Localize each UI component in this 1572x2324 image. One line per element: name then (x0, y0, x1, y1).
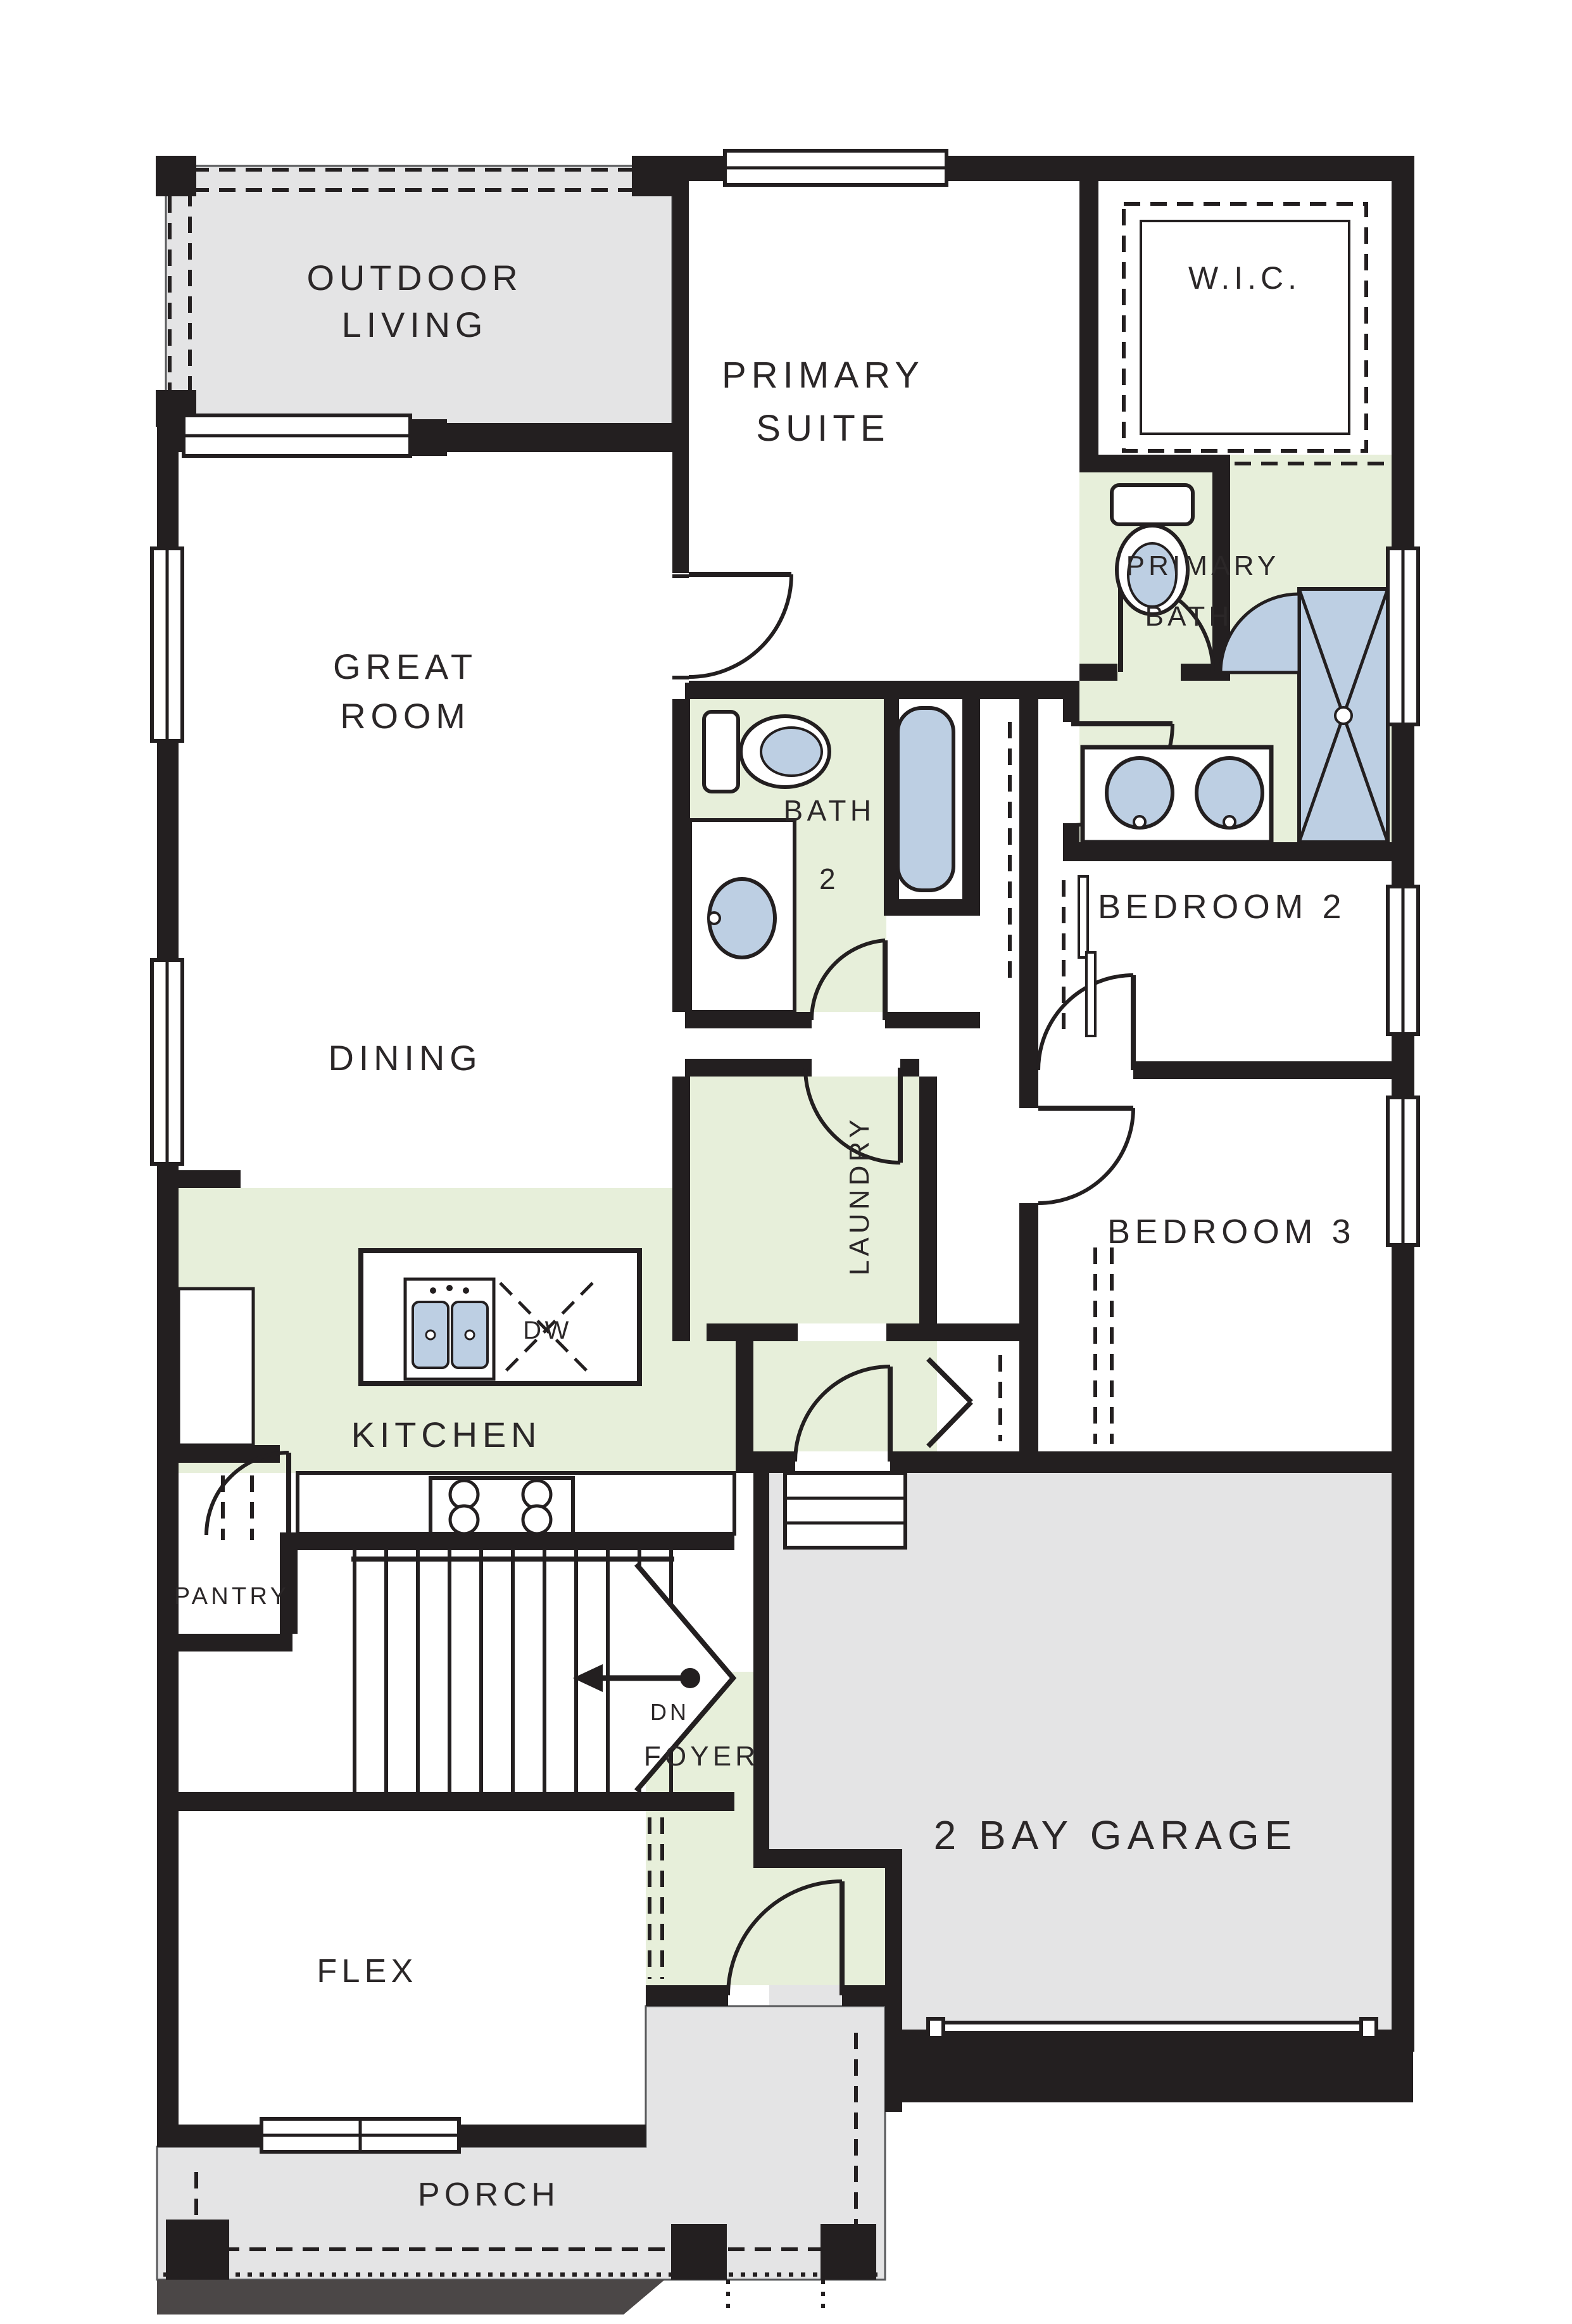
garage-steps (785, 1473, 905, 1548)
label-bedroom2: BEDROOM 2 (1098, 888, 1346, 926)
window (261, 2119, 459, 2152)
porch-pillar (821, 2224, 876, 2280)
label-dishwasher: DW (523, 1317, 572, 1344)
label-porch: PORCH (418, 2176, 560, 2213)
floorplan-svg: OUTDOOR LIVING PRIMARY SUITE W.I.C. PRIM… (0, 0, 1572, 2324)
porch-pillar (671, 2224, 727, 2280)
label-outdoor-living-2: LIVING (342, 305, 488, 344)
door-bedroom2-closet-bypass (1079, 876, 1095, 1036)
window (725, 151, 946, 185)
label-foyer: FOYER (644, 1741, 759, 1772)
double-vanity-icon (1083, 747, 1271, 842)
label-primary-suite-2: SUITE (756, 408, 890, 449)
label-bedroom3: BEDROOM 3 (1107, 1213, 1355, 1251)
label-pantry: PANTRY (174, 1583, 290, 1610)
bathtub-icon (898, 708, 953, 890)
label-bath2-2: 2 (819, 862, 839, 895)
label-dining: DINING (328, 1038, 482, 1078)
window (1388, 1097, 1418, 1245)
toilet-icon (704, 712, 829, 792)
wic-shelf-rod (1141, 221, 1349, 434)
window (184, 415, 410, 456)
label-outdoor-living-1: OUTDOOR (306, 258, 522, 298)
wic-shelf-dashed (1124, 204, 1366, 451)
label-primary-bath-2: BATH (1145, 601, 1233, 632)
label-laundry: LAUNDRY (844, 1116, 875, 1276)
label-great-room-2: ROOM (340, 696, 470, 736)
floorplan-sheet: OUTDOOR LIVING PRIMARY SUITE W.I.C. PRIM… (0, 0, 1572, 2324)
door-primary-suite (689, 574, 791, 677)
kitchen-island (361, 1251, 639, 1384)
window (1388, 548, 1418, 724)
mud-hall-closet (937, 1341, 1023, 1451)
label-stairs-down: DN (650, 1699, 689, 1725)
vanity-sink-icon (690, 820, 795, 1012)
toilet-icon (1112, 485, 1193, 614)
porch-step-edge (157, 2280, 665, 2315)
window (1388, 887, 1418, 1034)
label-wic: W.I.C. (1188, 260, 1301, 296)
label-garage: 2 BAY GARAGE (934, 1812, 1298, 1858)
stove-icon (431, 1478, 573, 1534)
kitchen-sink-icon (405, 1279, 494, 1379)
label-great-room-1: GREAT (333, 647, 477, 686)
label-primary-suite-1: PRIMARY (722, 355, 924, 396)
label-bath2-1: BATH (783, 794, 875, 827)
window (152, 960, 182, 1164)
label-kitchen: KITCHEN (351, 1415, 542, 1455)
door-bedroom-3 (1038, 1108, 1133, 1203)
label-flex: FLEX (317, 1953, 417, 1990)
label-primary-bath-1: PRIMARY (1126, 550, 1280, 581)
window (152, 548, 182, 741)
